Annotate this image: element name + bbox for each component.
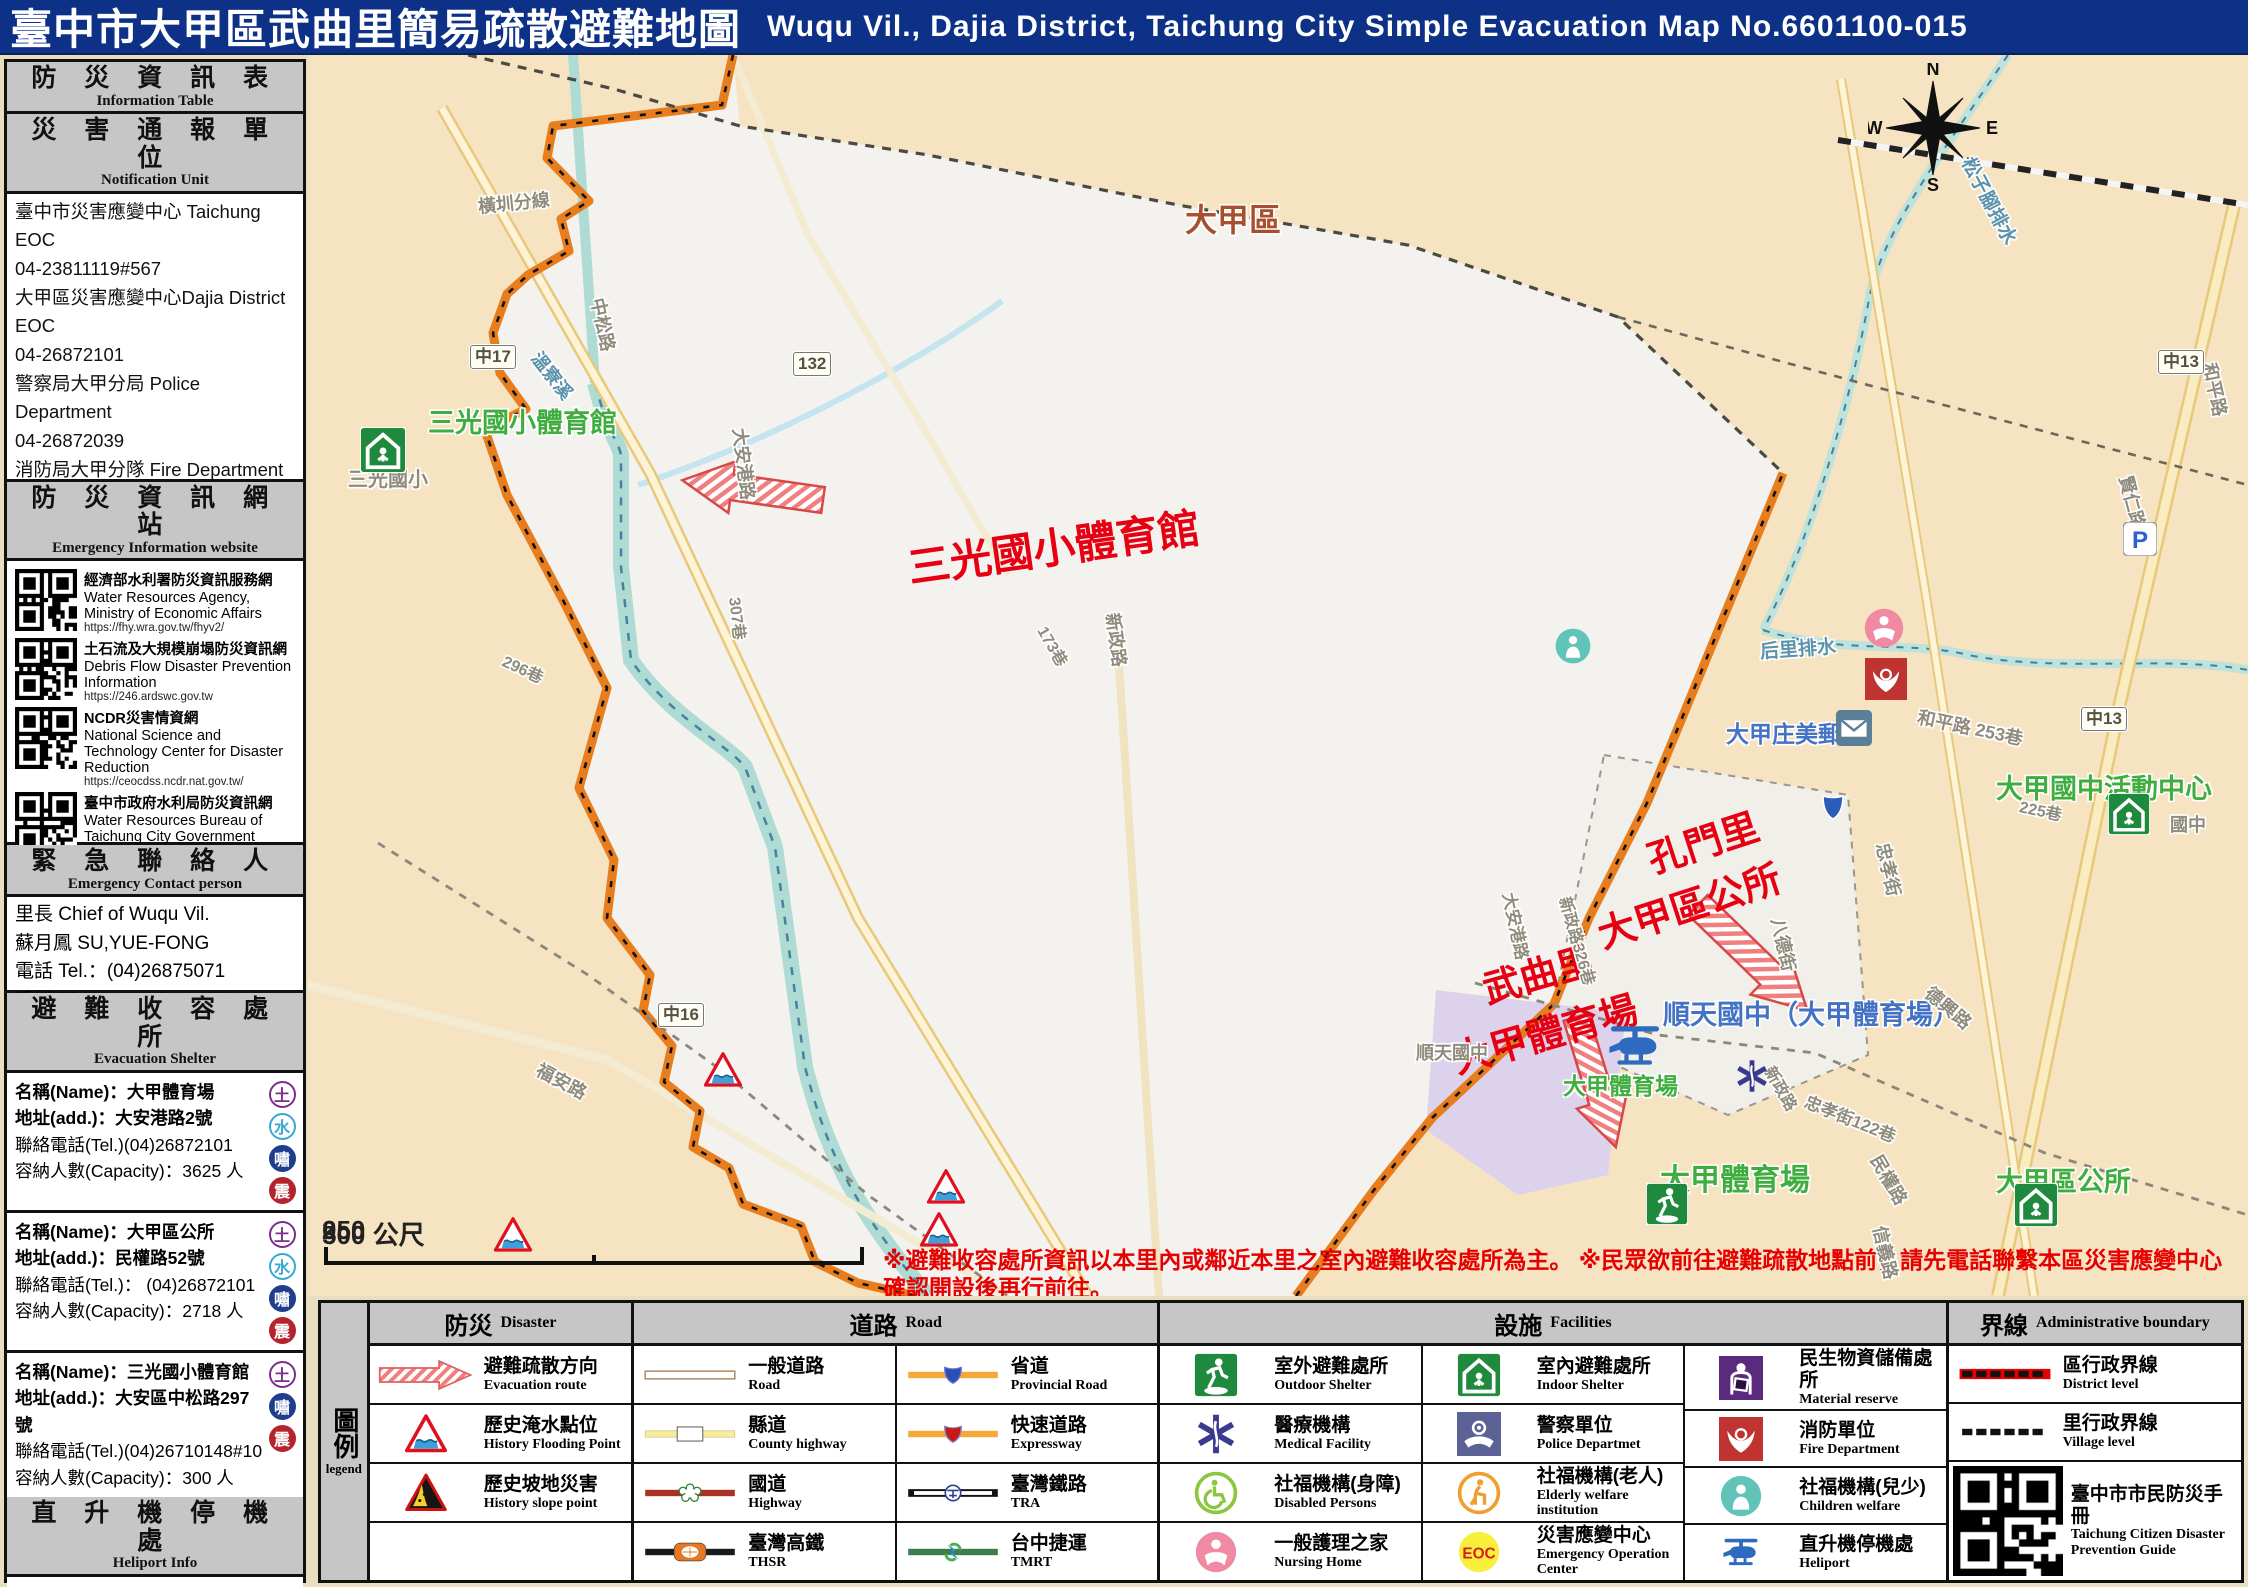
contact-line: 電話 Tel.：(04)26875071 (15, 958, 295, 987)
legend-label-zh: 醫療機構 (1274, 1415, 1371, 1437)
legend-empty-cell (370, 1523, 632, 1580)
map-legend: 圖例 legend 防災Disaster避難疏散方向Evacuation rou… (318, 1300, 2244, 1583)
website-entry: NCDR災害情資網National Science and Technology… (15, 707, 295, 788)
legend-item: 區行政界線District level (1949, 1346, 2241, 1404)
legend-item: 里行政界線Village level (1949, 1404, 2241, 1462)
legend-label-en: Heliport (1799, 1556, 1913, 1571)
indoor-icon (1427, 1353, 1531, 1397)
legend-label-en: Medical Facility (1274, 1437, 1371, 1452)
flood-icon (493, 1215, 533, 1260)
shelter-cap: 容納人數(Capacity)：300 人 (15, 1465, 265, 1492)
legend-group-title-en: Administrative boundary (2036, 1314, 2210, 1332)
legend-group-title-zh: 設施 (1494, 1306, 1542, 1341)
road-number-badge: 中17 (470, 345, 516, 369)
shelter-disclaimer: ※避難收容處所資訊以本里內或鄰近本里之室內避難收容處所為主。 ※民眾欲前往避難疏… (883, 1247, 2243, 1296)
legend-label-zh: 臺中市市民防災手冊 (2071, 1484, 2237, 1528)
flood-icon (703, 1050, 743, 1095)
emergency-contact-list: 里長 Chief of Wuqu Vil.蘇月鳳 SU,YUE-FONG電話 T… (7, 897, 303, 993)
scale-bar: 0 250 500 公尺 (322, 1215, 922, 1272)
shelter-addr: 地址(add.)：大安港路2號 (15, 1105, 265, 1132)
legend-label-zh: 省道 (1011, 1356, 1108, 1378)
shelter-cap: 容納人數(Capacity)：2718 人 (15, 1298, 265, 1325)
notification-entry-phone: 04-26872101 (15, 341, 295, 370)
section-header-contact: 緊 急 聯 絡 人 Emergency Contact person (7, 845, 303, 897)
legend-group-title-zh: 道路 (850, 1306, 898, 1341)
legend-label-en: Emergency Operation Center (1537, 1547, 1679, 1578)
website-name-zh: 臺中市政府水利局防災資訊網 (84, 792, 305, 813)
hazard-tag-震: 震 (269, 1425, 296, 1452)
website-name-en: National Science and Technology Center f… (84, 728, 295, 776)
website-entry: 土石流及大規模崩塌防災資訊網Debris Flow Disaster Preve… (15, 638, 295, 703)
heli2-icon (1689, 1531, 1793, 1575)
medical-icon (1734, 1058, 1770, 1099)
legend-label-en: County highway (748, 1437, 846, 1452)
notification-entry-name: 消防局大甲分隊 Fire Department (15, 456, 295, 485)
section-header-shelter: 避 難 收 容 處 所 Evacuation Shelter (7, 993, 303, 1073)
shelter-tel: 聯絡電話(Tel.)(04)26710148#10 (15, 1438, 265, 1465)
legend-label-en: Provincial Road (1011, 1378, 1108, 1393)
legend-label-zh: 室內避難處所 (1537, 1356, 1651, 1378)
indoor-icon (360, 427, 406, 478)
hazard-tag-土: 土 (269, 1221, 296, 1248)
svg-text:P: P (2132, 527, 2148, 554)
legend-label-zh: 一般道路 (748, 1356, 824, 1378)
website-url[interactable]: https://246.ardswc.gov.tw (84, 691, 295, 703)
legend-item: 一般道路Road (634, 1346, 895, 1405)
indoor-icon (2014, 1183, 2058, 1232)
notification-unit-list: 臺中市災害應變中心 Taichung EOC04-23811119#567大甲區… (7, 194, 303, 482)
legend-item: 社福機構(兒少)Children welfare (1685, 1468, 1945, 1525)
heliport-name-label: 名稱： (15, 1581, 295, 1587)
website-name-en: Water Resources Agency, Ministry of Econ… (84, 590, 295, 622)
section-header-notification-unit: 災 害 通 報 單 位 Notification Unit (7, 114, 303, 194)
express-icon (901, 1417, 1005, 1451)
legend-item: 歷史坡地災害History slope point (370, 1464, 632, 1523)
road-number-badge: 中13 (2158, 350, 2204, 374)
shelter-name: 名稱(Name)：三光國小體育館 (15, 1359, 265, 1386)
hazard-tag-嘯: 嘯 (269, 1285, 296, 1312)
legend-label-en: Taichung Citizen Disaster Prevention Gui… (2071, 1527, 2237, 1558)
legend-group-title-en: Disaster (500, 1314, 556, 1332)
legend-label-en: Material reserve (1799, 1392, 1941, 1407)
hazard-tag-土: 土 (269, 1361, 296, 1388)
map-label: 三光國小體育館 (428, 401, 617, 440)
highway-icon (638, 1476, 742, 1510)
legend-label-en: Disabled Persons (1274, 1496, 1401, 1511)
map-label: 后里排水 (1759, 632, 1837, 664)
road-number-badge: 中13 (2081, 707, 2127, 731)
page-title-zh: 臺中市大甲區武曲里簡易疏散避難地圖 (10, 0, 741, 57)
legend-key-header: 圖例 legend (321, 1303, 370, 1580)
svg-text:S: S (1927, 175, 1939, 193)
pbadge-icon: P (2123, 522, 2157, 561)
hazard-tag-震: 震 (269, 1317, 296, 1344)
info-sidebar: 防 災 資 訊 表 Information Table 災 害 通 報 單 位 … (4, 59, 306, 1583)
legend-label-en: Police Departmet (1537, 1437, 1641, 1452)
legend-label-zh: 社福機構(身障) (1274, 1474, 1401, 1496)
notification-entry-name: 大甲區災害應變中心Dajia District EOC (15, 284, 295, 341)
legend-item: 室內避難處所Indoor Shelter (1423, 1346, 1683, 1405)
shelter-tel: 聯絡電話(Tel.)： (04)26872101 (15, 1272, 265, 1299)
legend-item: 快速道路Expressway (897, 1405, 1158, 1464)
road-number-badge: 中16 (658, 1003, 704, 1027)
website-name-en: Debris Flow Disaster Prevention Informat… (84, 659, 295, 691)
svg-text:E: E (1986, 118, 1998, 138)
contact-line: 蘇月鳳 SU,YUE-FONG (15, 930, 295, 959)
hazard-tag-土: 土 (269, 1081, 296, 1108)
heli-icon (1603, 1015, 1667, 1084)
legend-group: 界線Administrative boundary區行政界線District l… (1949, 1303, 2241, 1580)
qr-code (15, 638, 77, 700)
shelter-addr: 地址(add.)：大安區中松路297號 (15, 1385, 265, 1438)
shelter-name: 名稱(Name)：大甲體育場 (15, 1079, 265, 1106)
notification-entry-phone: 04-26872039 (15, 427, 295, 456)
legend-label-zh: 一般護理之家 (1274, 1533, 1388, 1555)
legend-label-zh: 避難疏散方向 (484, 1356, 598, 1378)
shelter-entry: 名稱(Name)：三光國小體育館地址(add.)：大安區中松路297號聯絡電話(… (7, 1353, 303, 1498)
district-icon (1953, 1361, 2057, 1387)
map-label: 307巷 (724, 596, 753, 641)
map-base-art (308, 55, 2248, 1296)
legend-group: 設施Facilities室外避難處所Outdoor Shelter醫療機構Med… (1160, 1303, 1948, 1580)
road-number-badge: 132 (793, 352, 831, 376)
svg-text:EOC: EOC (1462, 1545, 1495, 1562)
shelter-addr: 地址(add.)：民權路52號 (15, 1245, 265, 1272)
website-name-en: Water Resources Bureau of Taichung City … (84, 813, 305, 845)
road-icon (638, 1360, 742, 1390)
legend-item: 社福機構(老人)Elderly welfare institution (1423, 1464, 1683, 1523)
children-icon (1554, 627, 1592, 670)
legend-label-en: Outdoor Shelter (1274, 1378, 1388, 1393)
outdoor-icon (1646, 1183, 1688, 1230)
legend-group: 防災Disaster避難疏散方向Evacuation route歷史淹水點位Hi… (370, 1303, 635, 1580)
legend-item: 歷史淹水點位History Flooding Point (370, 1405, 632, 1464)
legend-label-zh: 民生物資儲備處所 (1799, 1348, 1941, 1392)
tra-icon (901, 1476, 1005, 1510)
legend-label-en: History slope point (484, 1496, 598, 1511)
notification-entry-name: 臺中市災害應變中心 Taichung EOC (15, 198, 295, 255)
website-name-zh: 土石流及大規模崩塌防災資訊網 (84, 638, 295, 659)
svg-text:N: N (1927, 63, 1940, 79)
legend-label-zh: 消防單位 (1799, 1420, 1899, 1442)
hazard-tag-嘯: 嘯 (269, 1393, 296, 1420)
legend-group-header: 防災Disaster (370, 1303, 632, 1346)
shelter-list: 名稱(Name)：大甲體育場地址(add.)：大安港路2號聯絡電話(Tel.)(… (7, 1073, 303, 1498)
evacuation-map-page: 臺中市大甲區武曲里簡易疏散避難地圖 Wuqu Vil., Dajia Distr… (0, 0, 2248, 1587)
notification-entry-phone: 04-23811119#567 (15, 255, 295, 284)
legend-item: 臺灣鐵路TRA (897, 1464, 1158, 1523)
legend-label-zh: 歷史坡地災害 (484, 1474, 598, 1496)
police-icon (1427, 1412, 1531, 1456)
svg-text:W: W (1868, 118, 1883, 138)
hazard-tag-水: 水 (269, 1113, 296, 1140)
legend-group-title-zh: 界線 (1980, 1306, 2028, 1341)
legend-label-en: District level (2063, 1377, 2158, 1392)
legend-group-header: 設施Facilities (1160, 1303, 1945, 1346)
slope-icon (374, 1471, 478, 1515)
map-label: 大甲區 (1185, 195, 1281, 241)
elderly-icon (1427, 1471, 1531, 1515)
heliport-info: 名稱： 轄區分隊(電話)： (7, 1577, 303, 1587)
website-url[interactable]: https://fhy.wra.gov.tw/fhyv2/ (84, 622, 295, 634)
legend-label-en: Fire Department (1799, 1442, 1899, 1457)
flood-icon (919, 1210, 959, 1255)
legend-label-zh: 國道 (748, 1474, 802, 1496)
legend-label-zh: 區行政界線 (2063, 1355, 2158, 1377)
legend-label-en: Road (748, 1378, 824, 1393)
legend-group: 道路Road一般道路Road縣道County highway國道Highway臺… (634, 1303, 1160, 1580)
shelter-name: 名稱(Name)：大甲區公所 (15, 1219, 265, 1246)
village-icon (1953, 1419, 2057, 1445)
prov-icon (901, 1358, 1005, 1392)
legend-item: 民生物資儲備處所Material reserve (1685, 1346, 1945, 1411)
notification-entry-name: 警察局大甲分局 Police Department (15, 370, 295, 427)
evac-icon (374, 1356, 478, 1394)
legend-item: 醫療機構Medical Facility (1160, 1405, 1420, 1464)
legend-item: 社福機構(身障)Disabled Persons (1160, 1464, 1420, 1523)
legend-item: 消防單位Fire Department (1685, 1411, 1945, 1468)
disabled-icon (1164, 1471, 1268, 1515)
legend-item: 直升機停機處Heliport (1685, 1525, 1945, 1580)
map-canvas[interactable]: N S W E 0 250 500 公尺 ※避難收容處所資訊以本里內或鄰近本里之… (308, 55, 2248, 1296)
legend-label-en: Evacuation route (484, 1378, 598, 1393)
hazard-tag-嘯: 嘯 (269, 1145, 296, 1172)
county-icon (638, 1419, 742, 1449)
legend-group-header: 界線Administrative boundary (1949, 1303, 2241, 1346)
fire-icon (1865, 658, 1907, 705)
qr-code (1953, 1466, 2063, 1576)
legend-item: 縣道County highway (634, 1405, 895, 1464)
legend-label-en: THSR (748, 1555, 824, 1570)
section-header-info-table: 防 災 資 訊 表 Information Table (7, 62, 303, 114)
nursing-icon (1863, 607, 1905, 654)
children-icon (1689, 1474, 1793, 1518)
legend-item: 避難疏散方向Evacuation route (370, 1346, 632, 1405)
legend-label-zh: 里行政界線 (2063, 1413, 2158, 1435)
map-label: 順天國中 (1416, 1039, 1488, 1065)
legend-item: 臺灣高鐵THSR (634, 1523, 895, 1580)
legend-item: 一般護理之家Nursing Home (1160, 1523, 1420, 1580)
map-label: 國中 (2170, 811, 2206, 837)
tmrt-icon (901, 1535, 1005, 1569)
website-list: 經濟部水利署防災資訊服務網Water Resources Agency, Min… (7, 561, 303, 845)
section-header-websites: 防 災 資 訊 網 站 Emergency Information websit… (7, 482, 303, 562)
legend-label-en: TMRT (1011, 1555, 1087, 1570)
legend-item: 國道Highway (634, 1464, 895, 1523)
legend-label-zh: 台中捷運 (1011, 1533, 1087, 1555)
hazard-tag-水: 水 (269, 1253, 296, 1280)
legend-label-zh: 直升機停機處 (1799, 1534, 1913, 1556)
legend-label-en: Children welfare (1799, 1499, 1926, 1514)
legend-item: EOC災害應變中心Emergency Operation Center (1423, 1523, 1683, 1580)
website-entry: 經濟部水利署防災資訊服務網Water Resources Agency, Min… (15, 569, 295, 634)
legend-label-en: TRA (1011, 1496, 1087, 1511)
legend-item: 警察單位Police Departmet (1423, 1405, 1683, 1464)
map-label: 順天國中（大甲體育場） (1663, 993, 1960, 1032)
legend-item: 室外避難處所Outdoor Shelter (1160, 1346, 1420, 1405)
contact-line: 里長 Chief of Wuqu Vil. (15, 901, 295, 930)
shelter-entry: 名稱(Name)：大甲體育場地址(add.)：大安港路2號聯絡電話(Tel.)(… (7, 1073, 303, 1213)
website-name-zh: 經濟部水利署防災資訊服務網 (84, 569, 295, 590)
qr-code (15, 569, 77, 631)
legend-item: 省道Provincial Road (897, 1346, 1158, 1405)
legend-label-zh: 臺灣高鐵 (748, 1533, 824, 1555)
legend-label-en: Highway (748, 1496, 802, 1511)
legend-item: 台中捷運TMRT (897, 1523, 1158, 1580)
shield-icon (1819, 793, 1847, 826)
scale-500m: 500 公尺 (322, 1215, 425, 1252)
legend-label-zh: 警察單位 (1537, 1415, 1641, 1437)
legend-group-title-en: Road (906, 1314, 942, 1332)
indoor-icon (2108, 793, 2150, 840)
outdoor-icon (1164, 1353, 1268, 1397)
legend-label-zh: 縣道 (748, 1415, 846, 1437)
medical-icon (1164, 1412, 1268, 1456)
legend-label-zh: 災害應變中心 (1537, 1525, 1679, 1547)
legend-group-title-zh: 防災 (444, 1306, 492, 1341)
website-url[interactable]: https://ceocdss.ncdr.nat.gov.tw/ (84, 776, 295, 788)
thsr-icon (638, 1535, 742, 1569)
legend-label-en: Nursing Home (1274, 1555, 1388, 1570)
legend-label-en: Indoor Shelter (1537, 1378, 1651, 1393)
legend-label-zh: 社福機構(老人) (1537, 1466, 1679, 1488)
hazard-tag-震: 震 (269, 1177, 296, 1204)
page-title-en: Wuqu Vil., Dajia District, Taichung City… (767, 10, 1968, 44)
eoc-icon: EOC (1427, 1530, 1531, 1574)
flood-icon (374, 1412, 478, 1456)
shelter-tel: 聯絡電話(Tel.)(04)26872101 (15, 1132, 265, 1159)
legend-label-zh: 室外避難處所 (1274, 1356, 1388, 1378)
legend-label-en: Elderly welfare institution (1537, 1488, 1679, 1519)
legend-label-zh: 歷史淹水點位 (484, 1415, 621, 1437)
legend-label-en: Village level (2063, 1435, 2158, 1450)
legend-label-zh: 社福機構(兒少) (1799, 1477, 1926, 1499)
legend-label-zh: 臺灣鐵路 (1011, 1474, 1087, 1496)
map-title-bar: 臺中市大甲區武曲里簡易疏散避難地圖 Wuqu Vil., Dajia Distr… (0, 0, 2248, 55)
nursing-icon (1164, 1530, 1268, 1574)
legend-label-zh: 快速道路 (1011, 1415, 1087, 1437)
shelter-entry: 名稱(Name)：大甲區公所地址(add.)：民權路52號聯絡電話(Tel.)：… (7, 1213, 303, 1353)
legend-group-title-en: Facilities (1550, 1314, 1611, 1332)
flood-icon (926, 1167, 966, 1212)
qr-code (15, 707, 77, 769)
material-icon (1689, 1356, 1793, 1400)
legend-label-en: History Flooding Point (484, 1437, 621, 1452)
fire-icon (1689, 1417, 1793, 1461)
section-header-heliport: 直 升 機 停 機 處 Heliport Info (7, 1497, 303, 1577)
legend-label-en: Expressway (1011, 1437, 1087, 1452)
website-name-zh: NCDR災害情資網 (84, 707, 295, 728)
shelter-cap: 容納人數(Capacity)：3625 人 (15, 1158, 265, 1185)
mail-icon (1836, 710, 1872, 751)
legend-item-citizen-guide: 臺中市市民防災手冊Taichung Citizen Disaster Preve… (1949, 1462, 2241, 1580)
legend-group-header: 道路Road (634, 1303, 1157, 1346)
